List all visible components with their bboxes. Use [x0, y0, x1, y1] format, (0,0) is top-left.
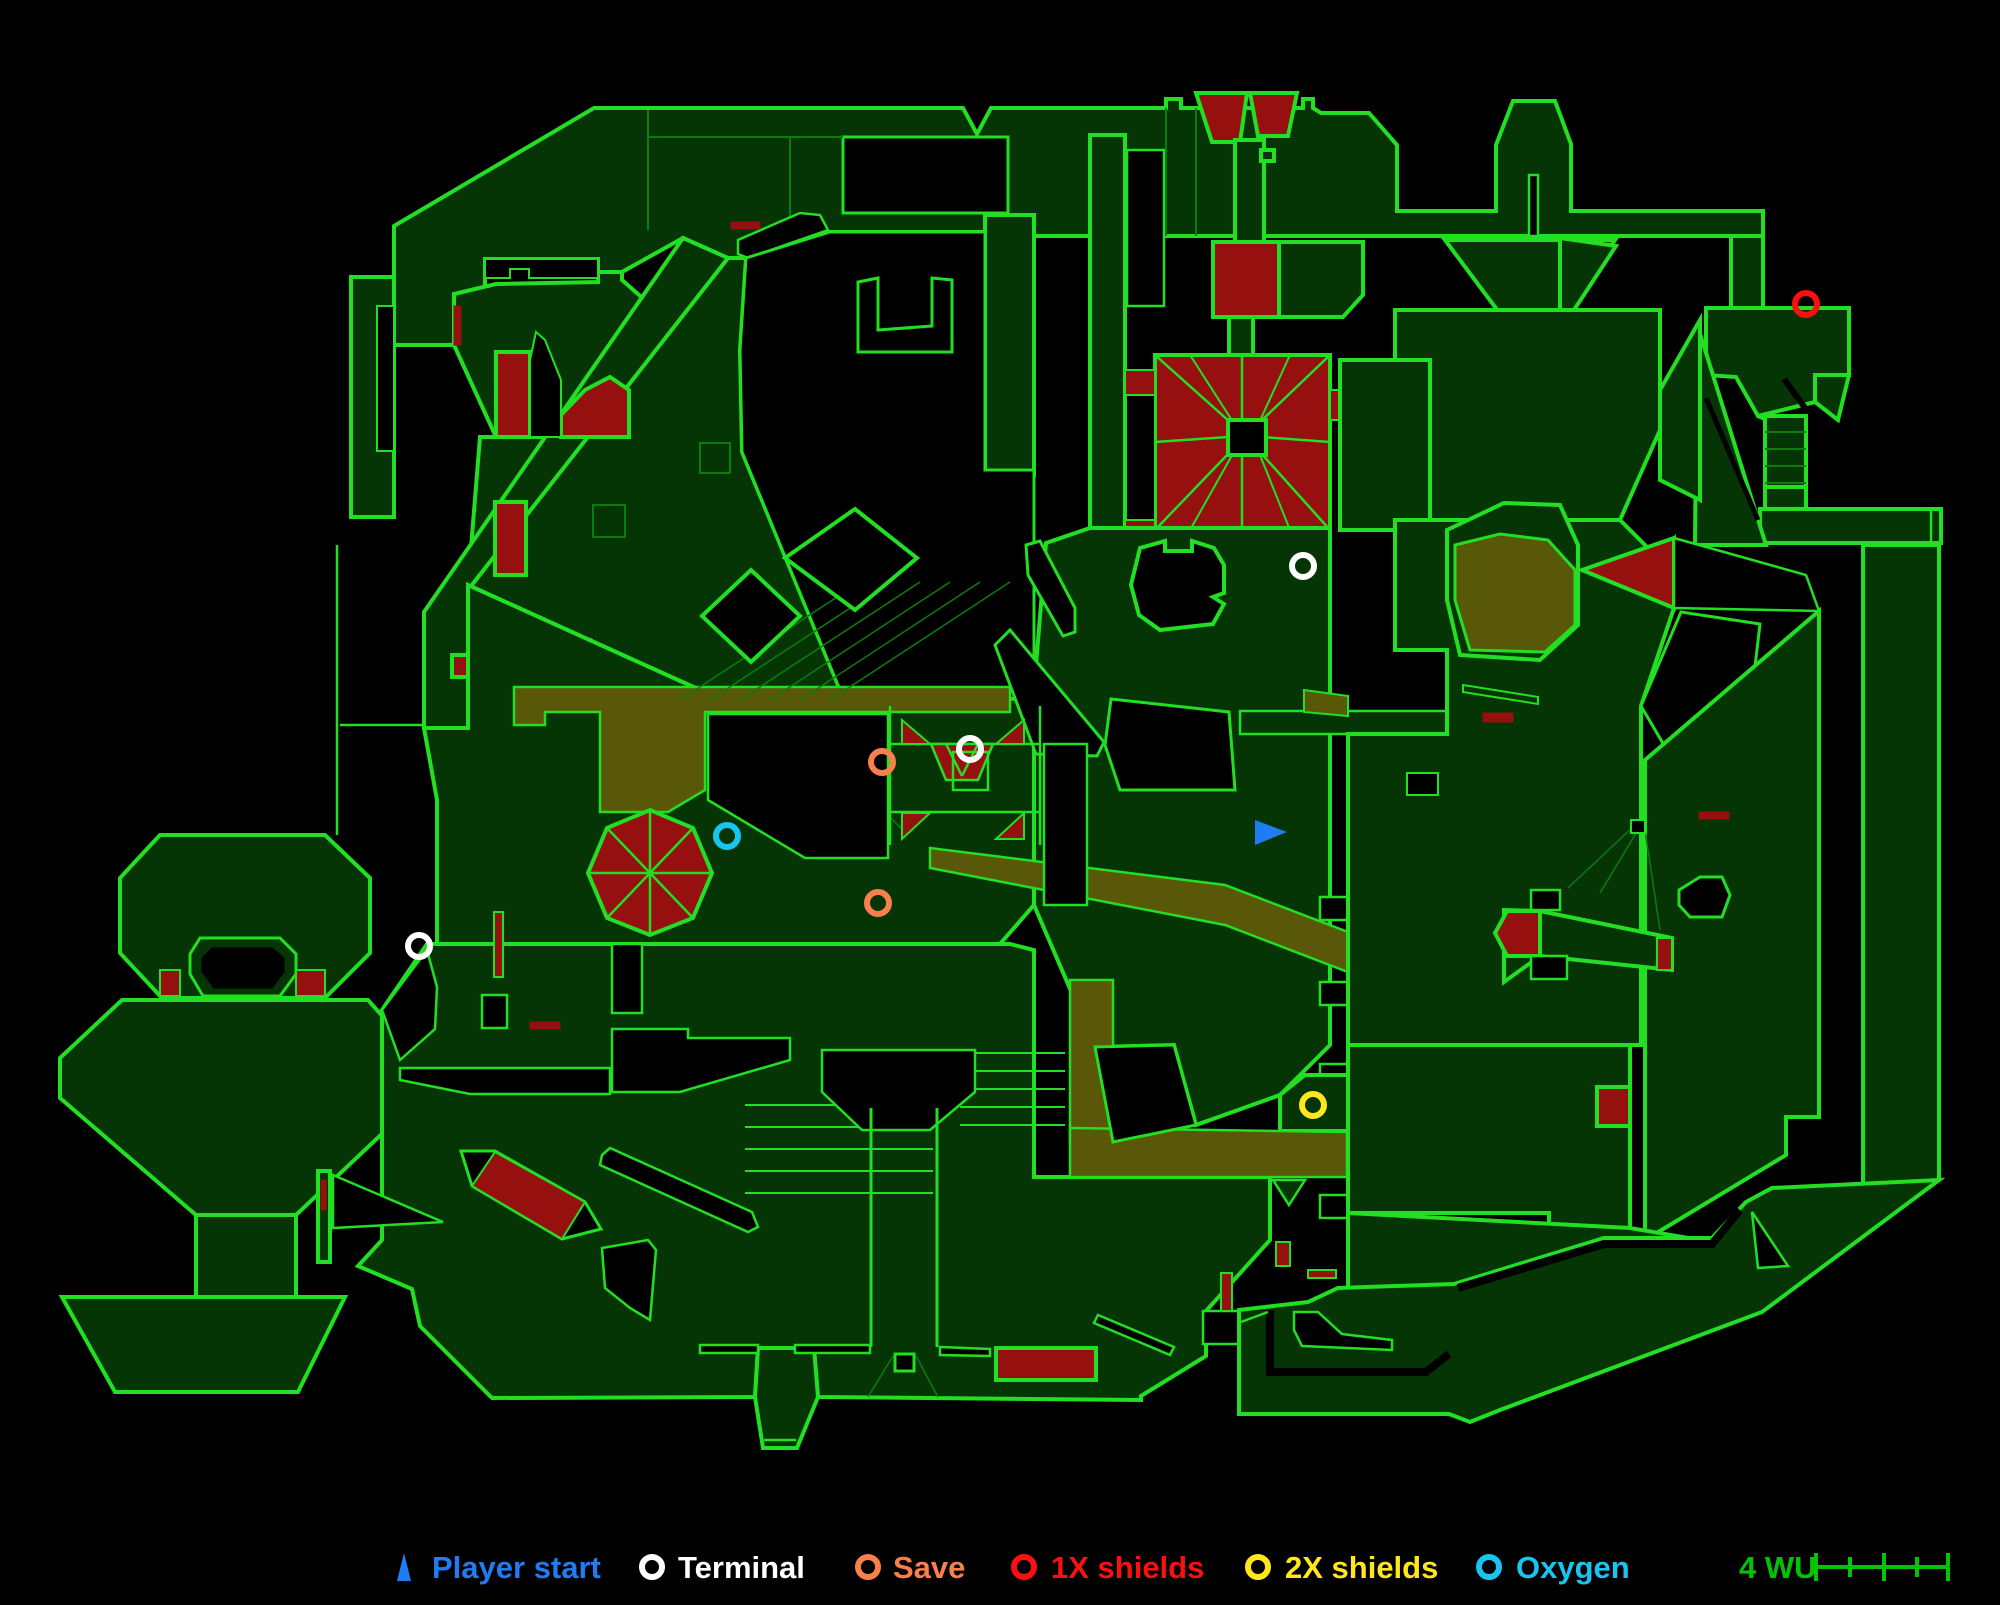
svg-text:4 WU: 4 WU [1739, 1550, 1817, 1585]
svg-text:Terminal: Terminal [678, 1550, 805, 1585]
svg-text:Oxygen: Oxygen [1516, 1550, 1630, 1585]
svg-text:1X shields: 1X shields [1051, 1550, 1204, 1585]
svg-text:2X shields: 2X shields [1285, 1550, 1438, 1585]
svg-text:Save: Save [893, 1550, 965, 1585]
svg-text:Player start: Player start [432, 1550, 601, 1585]
